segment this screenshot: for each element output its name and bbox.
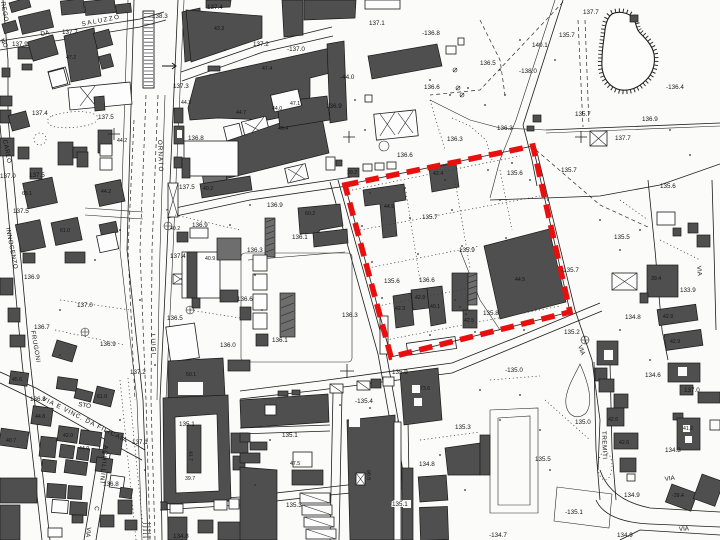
svg-text:39.7: 39.7 (185, 476, 195, 482)
svg-text:-134.7: -134.7 (489, 532, 507, 539)
svg-text:61.0: 61.0 (60, 228, 70, 234)
svg-text:135.7: 135.7 (575, 111, 591, 118)
svg-text:136.9: 136.9 (267, 202, 283, 209)
svg-text:137.2: 137.2 (253, 41, 269, 48)
svg-text:137.1: 137.1 (369, 20, 385, 27)
svg-text:41.7: 41.7 (187, 451, 193, 461)
svg-text:137.0: 137.0 (684, 387, 700, 394)
svg-text:136.3: 136.3 (342, 312, 358, 319)
svg-text:-137.0: -137.0 (287, 46, 305, 53)
svg-text:47.5: 47.5 (290, 461, 300, 467)
svg-text:40.2: 40.2 (170, 226, 180, 232)
svg-text:137.7: 137.7 (615, 135, 631, 142)
svg-text:137.5: 137.5 (29, 172, 45, 179)
svg-text:-136.8: -136.8 (422, 30, 440, 37)
svg-text:135.1: 135.1 (392, 501, 408, 508)
svg-text:44.7: 44.7 (236, 110, 246, 116)
svg-text:136.6: 136.6 (237, 296, 253, 303)
svg-text:137.7: 137.7 (62, 29, 78, 36)
svg-text:134.9: 134.9 (617, 532, 633, 539)
svg-text:137.5: 137.5 (13, 208, 29, 215)
svg-text:137.9: 137.9 (12, 41, 28, 48)
svg-text:-135.1: -135.1 (565, 509, 583, 516)
svg-text:-39.4: -39.4 (672, 493, 684, 499)
svg-text:47.4: 47.4 (262, 66, 272, 72)
svg-text:65.1: 65.1 (22, 191, 32, 197)
svg-text:137.0: 137.0 (0, 173, 16, 180)
svg-text:44.3: 44.3 (181, 100, 191, 106)
svg-text:ORNATO: ORNATO (156, 140, 164, 173)
svg-text:136.6: 136.6 (424, 84, 440, 91)
svg-text:50.1: 50.1 (186, 372, 196, 378)
svg-text:135.6: 135.6 (507, 170, 523, 177)
svg-text:42.0: 42.0 (63, 433, 73, 439)
svg-text:136.6: 136.6 (419, 277, 435, 284)
svg-text:42.9: 42.9 (415, 295, 425, 301)
svg-text:136.9: 136.9 (192, 222, 208, 229)
svg-text:137.4: 137.4 (32, 110, 48, 117)
svg-text:135.8: 135.8 (483, 310, 499, 317)
svg-text:135.5: 135.5 (614, 234, 630, 241)
svg-text:136.3: 136.3 (447, 136, 463, 143)
svg-text:42.4: 42.4 (433, 171, 443, 177)
svg-text:TREMITI: TREMITI (600, 431, 608, 460)
svg-text:135.5: 135.5 (535, 456, 551, 463)
svg-text:44.5: 44.5 (515, 277, 525, 283)
svg-text:136.5: 136.5 (480, 60, 496, 67)
svg-text:45.6: 45.6 (12, 377, 22, 383)
svg-text:137.1: 137.1 (132, 439, 148, 446)
svg-text:136.9: 136.9 (100, 341, 116, 348)
svg-text:40.2: 40.2 (203, 186, 213, 192)
svg-text:136.0: 136.0 (220, 342, 236, 349)
svg-text:137.2: 137.2 (130, 369, 146, 376)
svg-text:137.7: 137.7 (583, 9, 599, 16)
svg-text:VIA: VIA (679, 525, 690, 533)
svg-text:136.3: 136.3 (247, 247, 263, 254)
svg-text:-135.0: -135.0 (505, 367, 523, 374)
svg-text:134.6: 134.6 (645, 372, 661, 379)
svg-text:44.2: 44.2 (101, 189, 111, 195)
svg-text:-44.0: -44.0 (340, 74, 355, 81)
svg-text:42.6: 42.6 (619, 440, 629, 446)
svg-text:39.2: 39.2 (347, 170, 357, 176)
svg-text:44.8: 44.8 (35, 414, 45, 420)
svg-text:135.7: 135.7 (561, 167, 577, 174)
svg-text:140.1: 140.1 (532, 42, 548, 49)
svg-text:VIA: VIA (695, 266, 703, 278)
svg-text:134.9: 134.9 (624, 492, 640, 499)
svg-text:LUIGI: LUIGI (149, 334, 157, 356)
svg-text:61.0: 61.0 (97, 394, 107, 400)
svg-text:47.1: 47.1 (290, 101, 300, 107)
svg-text:136.1: 136.1 (272, 337, 288, 344)
svg-text:44.2: 44.2 (117, 138, 127, 144)
svg-text:134.8: 134.8 (419, 461, 435, 468)
svg-text:136.1: 136.1 (292, 234, 308, 241)
svg-text:136.6: 136.6 (397, 152, 413, 159)
svg-text:136.3: 136.3 (497, 125, 513, 132)
svg-text:44.9: 44.9 (384, 204, 394, 210)
svg-text:136.9: 136.9 (326, 103, 342, 110)
svg-text:135.7: 135.7 (559, 32, 575, 39)
svg-text:135.1: 135.1 (282, 432, 298, 439)
svg-text:43.3: 43.3 (214, 26, 224, 32)
svg-text:134.8: 134.8 (625, 314, 641, 321)
svg-text:42.5: 42.5 (464, 318, 474, 324)
svg-text:136.8: 136.8 (188, 135, 204, 142)
svg-text:137.4: 137.4 (207, 4, 223, 11)
svg-text:134.3: 134.3 (665, 447, 681, 454)
svg-text:135.9: 135.9 (459, 247, 475, 254)
svg-text:135.1: 135.1 (179, 421, 195, 428)
svg-text:47.2: 47.2 (66, 55, 76, 61)
svg-text:135.0: 135.0 (575, 419, 591, 426)
svg-text:42.9: 42.9 (670, 339, 680, 345)
svg-text:40.9: 40.9 (205, 256, 215, 262)
svg-text:-135.7: -135.7 (561, 267, 579, 274)
svg-text:138.3: 138.3 (152, 13, 168, 20)
svg-text:137.3: 137.3 (173, 83, 189, 90)
svg-text:39.4: 39.4 (651, 276, 661, 282)
svg-text:134.8: 134.8 (173, 533, 189, 540)
svg-text:135.7: 135.7 (422, 214, 438, 221)
svg-text:137.5: 137.5 (98, 114, 114, 121)
svg-text:135.6: 135.6 (660, 183, 676, 190)
svg-text:137.4: 137.4 (170, 253, 186, 260)
svg-text:135.6: 135.6 (384, 278, 400, 285)
svg-text:40.1: 40.1 (430, 304, 440, 310)
svg-text:-135.4: -135.4 (355, 398, 373, 405)
svg-text:135.9: 135.9 (392, 369, 408, 376)
svg-text:42.6: 42.6 (608, 417, 618, 423)
svg-text:136.5: 136.5 (167, 315, 183, 322)
svg-text:-136.4: -136.4 (666, 84, 684, 91)
svg-text:136.9: 136.9 (642, 116, 658, 123)
svg-text:49.4: 49.4 (278, 126, 288, 132)
svg-text:VIA: VIA (84, 527, 92, 539)
svg-text:42.3: 42.3 (395, 306, 405, 312)
svg-text:133.9: 133.9 (680, 287, 696, 294)
svg-text:44.9: 44.9 (79, 446, 89, 452)
svg-text:44.0: 44.0 (272, 106, 282, 112)
svg-text:60.2: 60.2 (305, 211, 315, 217)
svg-text:-138.0: -138.0 (519, 68, 537, 75)
svg-text:40.7: 40.7 (6, 438, 16, 444)
svg-text:73.6: 73.6 (420, 386, 430, 392)
svg-text:42.9: 42.9 (663, 314, 673, 320)
svg-text:136.9: 136.9 (24, 274, 40, 281)
svg-text:137.5: 137.5 (179, 184, 195, 191)
svg-text:137.0: 137.0 (77, 302, 93, 309)
svg-text:135.2: 135.2 (564, 329, 580, 336)
svg-text:41.2: 41.2 (683, 426, 693, 432)
svg-text:135.3: 135.3 (286, 502, 302, 509)
svg-text:90.8: 90.8 (365, 470, 371, 480)
svg-text:135.3: 135.3 (455, 424, 471, 431)
